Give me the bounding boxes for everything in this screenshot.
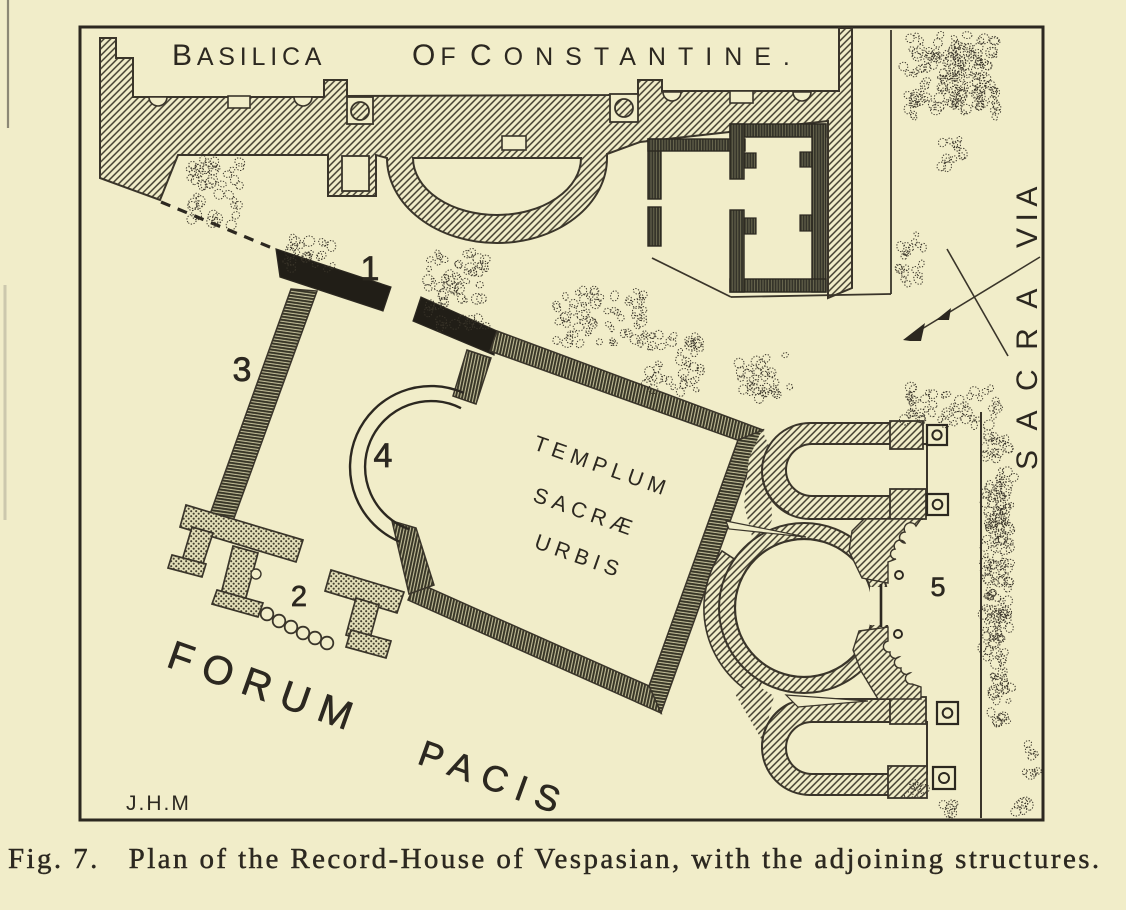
svg-text:PACIS: PACIS [413, 732, 575, 825]
svg-text:FORUM: FORUM [162, 633, 369, 743]
svg-text:Fig. 7. Plan of the Record-H: Fig. 7. Plan of the Record-House of Vesp… [8, 843, 1102, 875]
svg-text:URBIS: URBIS [531, 530, 627, 584]
svg-text:OF: OF [412, 39, 461, 72]
svg-text:CONSTANTINE.: CONSTANTINE. [470, 39, 802, 72]
svg-text:4: 4 [374, 437, 393, 475]
svg-text:3: 3 [233, 351, 252, 389]
svg-text:2: 2 [291, 581, 307, 613]
svg-text:5: 5 [930, 572, 945, 602]
svg-text:BASILICA: BASILICA [172, 39, 326, 72]
svg-text:SACRA: SACRA [1011, 269, 1044, 470]
svg-text:1: 1 [361, 250, 380, 288]
svg-text:J.H.M: J.H.M [126, 792, 191, 815]
svg-text:VIA: VIA [1011, 180, 1044, 248]
